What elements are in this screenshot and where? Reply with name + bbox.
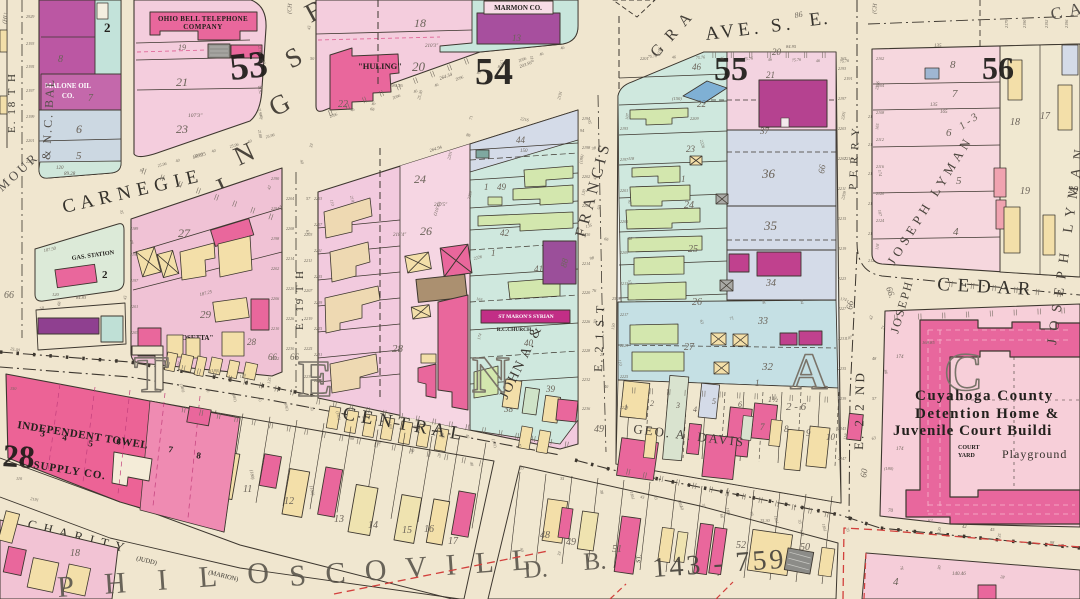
svg-text:42: 42 (500, 228, 510, 238)
svg-text:2193: 2193 (620, 126, 628, 131)
svg-text:2104: 2104 (876, 83, 884, 88)
svg-text:8: 8 (58, 54, 63, 65)
svg-text:32: 32 (761, 361, 774, 373)
svg-text:E. 2 1 S T: E. 2 1 S T (591, 304, 607, 373)
svg-text:1: 1 (491, 248, 496, 258)
svg-text:2209: 2209 (690, 116, 699, 121)
svg-text:2228: 2228 (582, 348, 590, 353)
svg-text:71: 71 (468, 115, 474, 120)
svg-text:174: 174 (896, 447, 904, 452)
svg-text:COURT: COURT (958, 445, 979, 451)
svg-text:110: 110 (16, 476, 23, 481)
svg-text:44: 44 (516, 135, 526, 145)
svg-text:2214: 2214 (286, 256, 294, 261)
svg-text:2193: 2193 (838, 66, 846, 71)
svg-text:2193: 2193 (130, 252, 138, 257)
svg-text:39: 39 (545, 384, 556, 394)
svg-text:56: 56 (982, 50, 1014, 86)
svg-text:140.46: 140.46 (952, 572, 966, 577)
svg-text:27: 27 (178, 226, 191, 240)
svg-text:2: 2 (102, 269, 108, 281)
svg-text:168.85: 168.85 (922, 340, 935, 345)
svg-text:2102: 2102 (876, 56, 884, 61)
svg-text:2192: 2192 (1044, 20, 1049, 28)
svg-text:118: 118 (628, 156, 635, 161)
svg-text:2206: 2206 (271, 296, 280, 301)
svg-text:6: 6 (738, 400, 742, 409)
svg-text:70: 70 (888, 509, 894, 514)
svg-text:18: 18 (414, 16, 426, 30)
svg-text:9: 9 (806, 428, 811, 438)
svg-text:Detention Home &: Detention Home & (915, 406, 1060, 422)
svg-text:2198: 2198 (271, 236, 279, 241)
svg-text:2201: 2201 (26, 138, 34, 143)
svg-text:84.95: 84.95 (786, 44, 797, 49)
svg-text:63: 63 (305, 229, 311, 234)
svg-text:2190: 2190 (1022, 19, 1027, 28)
svg-text:(180): (180) (210, 368, 220, 373)
svg-text:41: 41 (534, 264, 543, 274)
svg-text:120: 120 (52, 292, 60, 297)
svg-text:42: 42 (962, 524, 967, 529)
svg-text:20: 20 (772, 47, 782, 57)
svg-text:2210: 2210 (271, 326, 279, 331)
svg-text:2201: 2201 (620, 188, 628, 193)
svg-text:49: 49 (594, 424, 604, 435)
svg-text:2198: 2198 (582, 145, 590, 150)
svg-text:2201: 2201 (130, 304, 138, 309)
svg-text:75.76: 75.76 (744, 55, 755, 61)
svg-text:B.: B. (583, 547, 608, 576)
svg-text:4: 4 (693, 405, 697, 414)
svg-text:2211: 2211 (314, 248, 322, 253)
svg-text:5: 5 (956, 175, 962, 187)
svg-text:6: 6 (946, 127, 952, 139)
svg-text:20: 20 (412, 59, 426, 74)
svg-text:2232: 2232 (582, 377, 590, 382)
svg-text:4: 4 (953, 226, 959, 238)
svg-text:N: N (472, 347, 510, 404)
svg-text:2231: 2231 (314, 352, 322, 357)
svg-text:Playground: Playground (1002, 447, 1067, 461)
svg-text:13: 13 (334, 514, 344, 525)
svg-text:2194: 2194 (582, 116, 590, 121)
svg-text:5: 5 (76, 150, 82, 162)
svg-text:2211: 2211 (838, 186, 846, 191)
svg-text:18: 18 (70, 548, 80, 559)
svg-text:46: 46 (692, 62, 702, 72)
svg-text:18: 18 (1010, 117, 1020, 128)
svg-text:86: 86 (794, 10, 803, 20)
svg-text:34: 34 (765, 278, 776, 289)
svg-text:1: 1 (755, 378, 760, 388)
svg-text:2219: 2219 (838, 246, 846, 251)
svg-text:107'3": 107'3" (188, 113, 203, 119)
svg-text:2215: 2215 (838, 216, 846, 221)
svg-text:2213: 2213 (620, 281, 628, 286)
svg-text:48: 48 (540, 530, 550, 541)
svg-text:2235: 2235 (838, 366, 846, 371)
svg-text:2239: 2239 (838, 396, 846, 401)
svg-text:2227: 2227 (838, 306, 847, 311)
svg-text:D.: D. (523, 555, 549, 584)
svg-text:6: 6 (76, 122, 82, 136)
svg-text:27: 27 (684, 342, 695, 353)
svg-text:5: 5 (712, 397, 716, 406)
svg-text:19: 19 (1020, 186, 1030, 197)
svg-text:165: 165 (940, 110, 948, 115)
svg-text:25.30: 25.30 (760, 518, 771, 523)
svg-text:2220: 2220 (582, 290, 590, 295)
svg-text:2202: 2202 (582, 174, 590, 179)
svg-text:R.C.CHURCH: R.C.CHURCH (497, 327, 532, 333)
svg-text:2116: 2116 (876, 164, 885, 169)
svg-text:2207: 2207 (304, 288, 313, 293)
svg-text:2206: 2206 (582, 203, 591, 208)
svg-text:2193: 2193 (26, 41, 34, 46)
svg-text:E. 2 2 ND: E. 2 2 ND (851, 370, 867, 450)
svg-text:29: 29 (200, 309, 212, 321)
svg-text:2229: 2229 (620, 405, 628, 410)
svg-text:2195: 2195 (26, 64, 34, 69)
svg-text:150: 150 (10, 386, 17, 391)
svg-text:2220: 2220 (286, 286, 294, 291)
svg-text:COMPANY: COMPANY (183, 23, 223, 31)
svg-text:ST.: ST. (636, 554, 643, 563)
svg-text:2235: 2235 (314, 378, 322, 383)
svg-text:66: 66 (4, 290, 14, 301)
svg-text:24: 24 (414, 172, 426, 186)
svg-text:T: T (134, 347, 169, 404)
svg-text:2208: 2208 (286, 226, 294, 231)
svg-text:MARMON CO.: MARMON CO. (494, 4, 542, 12)
svg-text:E. 18 T H: E. 18 T H (6, 72, 18, 133)
svg-text:2219: 2219 (304, 316, 313, 321)
svg-text:15: 15 (402, 525, 412, 536)
svg-text:150: 150 (520, 149, 528, 154)
svg-text:1: 1 (681, 174, 686, 184)
svg-text:1: 1 (484, 182, 489, 192)
svg-text:33: 33 (261, 59, 267, 64)
svg-text:2112: 2112 (876, 137, 884, 142)
svg-text:2209: 2209 (620, 250, 628, 255)
svg-text:10: 10 (826, 432, 836, 442)
svg-text:2929: 2929 (26, 14, 35, 19)
svg-text:(CH: (CH (871, 3, 879, 15)
svg-text:89.28: 89.28 (64, 172, 76, 177)
svg-text:17: 17 (448, 536, 459, 547)
svg-text:51: 51 (612, 544, 622, 555)
svg-text:2: 2 (650, 399, 654, 408)
svg-text:23: 23 (176, 122, 188, 136)
svg-text:54: 54 (475, 51, 513, 93)
svg-text:17: 17 (1040, 111, 1051, 122)
svg-text:4: 4 (893, 576, 899, 588)
svg-text:22: 22 (697, 99, 707, 109)
svg-text:3: 3 (675, 401, 680, 410)
svg-text:2197: 2197 (620, 157, 629, 162)
svg-text:2207: 2207 (838, 156, 847, 161)
svg-text:E.: E. (808, 8, 831, 31)
svg-text:2215: 2215 (314, 274, 322, 279)
svg-text:28: 28 (247, 337, 257, 347)
svg-text:2202: 2202 (271, 266, 279, 271)
svg-text:75.76: 75.76 (792, 57, 803, 63)
svg-text:2225: 2225 (620, 374, 628, 379)
svg-text:2203: 2203 (314, 196, 322, 201)
svg-text:35: 35 (763, 218, 778, 233)
svg-text:75.76: 75.76 (648, 53, 659, 59)
svg-text:135: 135 (934, 44, 942, 49)
svg-text:26: 26 (692, 297, 702, 308)
svg-text:218'4": 218'4" (393, 233, 407, 238)
svg-text:2236: 2236 (582, 406, 591, 411)
svg-text:(CH: (CH (286, 3, 294, 15)
svg-text:2124: 2124 (876, 218, 884, 223)
svg-text:2223: 2223 (838, 276, 846, 281)
svg-text:2219: 2219 (314, 300, 322, 305)
svg-text:19: 19 (178, 43, 186, 52)
svg-text:2211: 2211 (304, 258, 312, 263)
svg-text:2207: 2207 (314, 222, 323, 227)
svg-text:26: 26 (420, 224, 432, 238)
svg-text:75.76: 75.76 (696, 54, 707, 60)
svg-text:75.76: 75.76 (840, 58, 851, 64)
svg-text:16: 16 (424, 524, 434, 535)
svg-text:8: 8 (950, 59, 956, 71)
svg-text:2 - 6: 2 - 6 (786, 401, 807, 413)
svg-text:135: 135 (930, 103, 938, 108)
svg-text:12: 12 (284, 496, 294, 507)
svg-text:Cuyahoga County: Cuyahoga County (915, 388, 1054, 404)
svg-text:8: 8 (784, 424, 789, 434)
svg-text:2203: 2203 (838, 126, 846, 131)
svg-text:2191: 2191 (844, 76, 853, 81)
svg-text:2120: 2120 (876, 191, 884, 196)
svg-text:2221: 2221 (620, 343, 628, 348)
svg-text:7: 7 (760, 422, 765, 432)
svg-text:24: 24 (684, 200, 694, 211)
svg-text:50: 50 (800, 542, 810, 553)
svg-text:2194: 2194 (271, 206, 279, 211)
svg-text:2226: 2226 (582, 319, 591, 324)
svg-text:2197: 2197 (26, 88, 35, 93)
svg-text:2243: 2243 (838, 426, 846, 431)
svg-text:Juvenile Court Buildi: Juvenile Court Buildi (893, 423, 1052, 439)
svg-text:2197: 2197 (838, 96, 847, 101)
svg-text:174: 174 (896, 355, 904, 360)
svg-text:25: 25 (688, 244, 698, 255)
svg-text:33: 33 (757, 316, 768, 327)
svg-text:21: 21 (766, 70, 775, 80)
svg-text:2: 2 (104, 20, 111, 35)
svg-text:2231: 2231 (838, 336, 846, 341)
svg-text:2212: 2212 (271, 356, 279, 361)
svg-text:(180): (180) (884, 466, 894, 471)
svg-text:21: 21 (176, 75, 188, 89)
svg-text:2108: 2108 (876, 110, 884, 115)
svg-text:37: 37 (759, 126, 770, 136)
svg-text:28: 28 (392, 343, 404, 355)
svg-text:2189: 2189 (130, 226, 138, 231)
svg-text:22: 22 (338, 99, 348, 110)
svg-text:2204: 2204 (286, 196, 294, 201)
svg-text:ST MARON'S SYRIAN: ST MARON'S SYRIAN (498, 314, 553, 320)
svg-text:49: 49 (566, 537, 576, 548)
svg-text:CO.: CO. (62, 92, 75, 100)
svg-text:49: 49 (497, 182, 507, 192)
svg-text:120: 120 (56, 166, 64, 171)
svg-text:2205: 2205 (130, 330, 138, 335)
svg-text:2226: 2226 (286, 316, 295, 321)
svg-text:14: 14 (368, 520, 378, 531)
svg-text:62: 62 (928, 518, 933, 523)
svg-text:2179: 2179 (1004, 19, 1009, 28)
svg-text:7: 7 (952, 88, 958, 100)
svg-text:"HULING": "HULING" (358, 61, 402, 71)
svg-text:YARD: YARD (958, 453, 975, 459)
svg-text:(150): (150) (672, 96, 682, 101)
svg-text:2190: 2190 (271, 176, 279, 181)
svg-text:1½: 1½ (768, 395, 778, 404)
svg-text:13: 13 (512, 33, 522, 43)
svg-text:45: 45 (990, 527, 995, 532)
svg-text:2210: 2210 (582, 232, 590, 237)
svg-text:210'3": 210'3" (425, 44, 439, 49)
svg-text:2197: 2197 (130, 278, 139, 283)
svg-text:2205: 2205 (620, 219, 628, 224)
svg-text:2230: 2230 (286, 346, 294, 351)
svg-text:OHIO BELL TELEPHONE: OHIO BELL TELEPHONE (158, 15, 248, 23)
svg-text:2247: 2247 (838, 456, 847, 461)
svg-text:2199: 2199 (26, 114, 35, 119)
svg-text:84.83: 84.83 (76, 295, 87, 300)
svg-text:25.30: 25.30 (612, 296, 623, 301)
svg-text:A: A (790, 344, 828, 401)
svg-text:2225: 2225 (314, 326, 322, 331)
svg-text:36: 36 (761, 166, 776, 181)
svg-text:11: 11 (243, 484, 252, 495)
svg-text:2217: 2217 (620, 312, 629, 317)
svg-text:2214: 2214 (582, 261, 590, 266)
svg-text:23: 23 (686, 144, 696, 154)
